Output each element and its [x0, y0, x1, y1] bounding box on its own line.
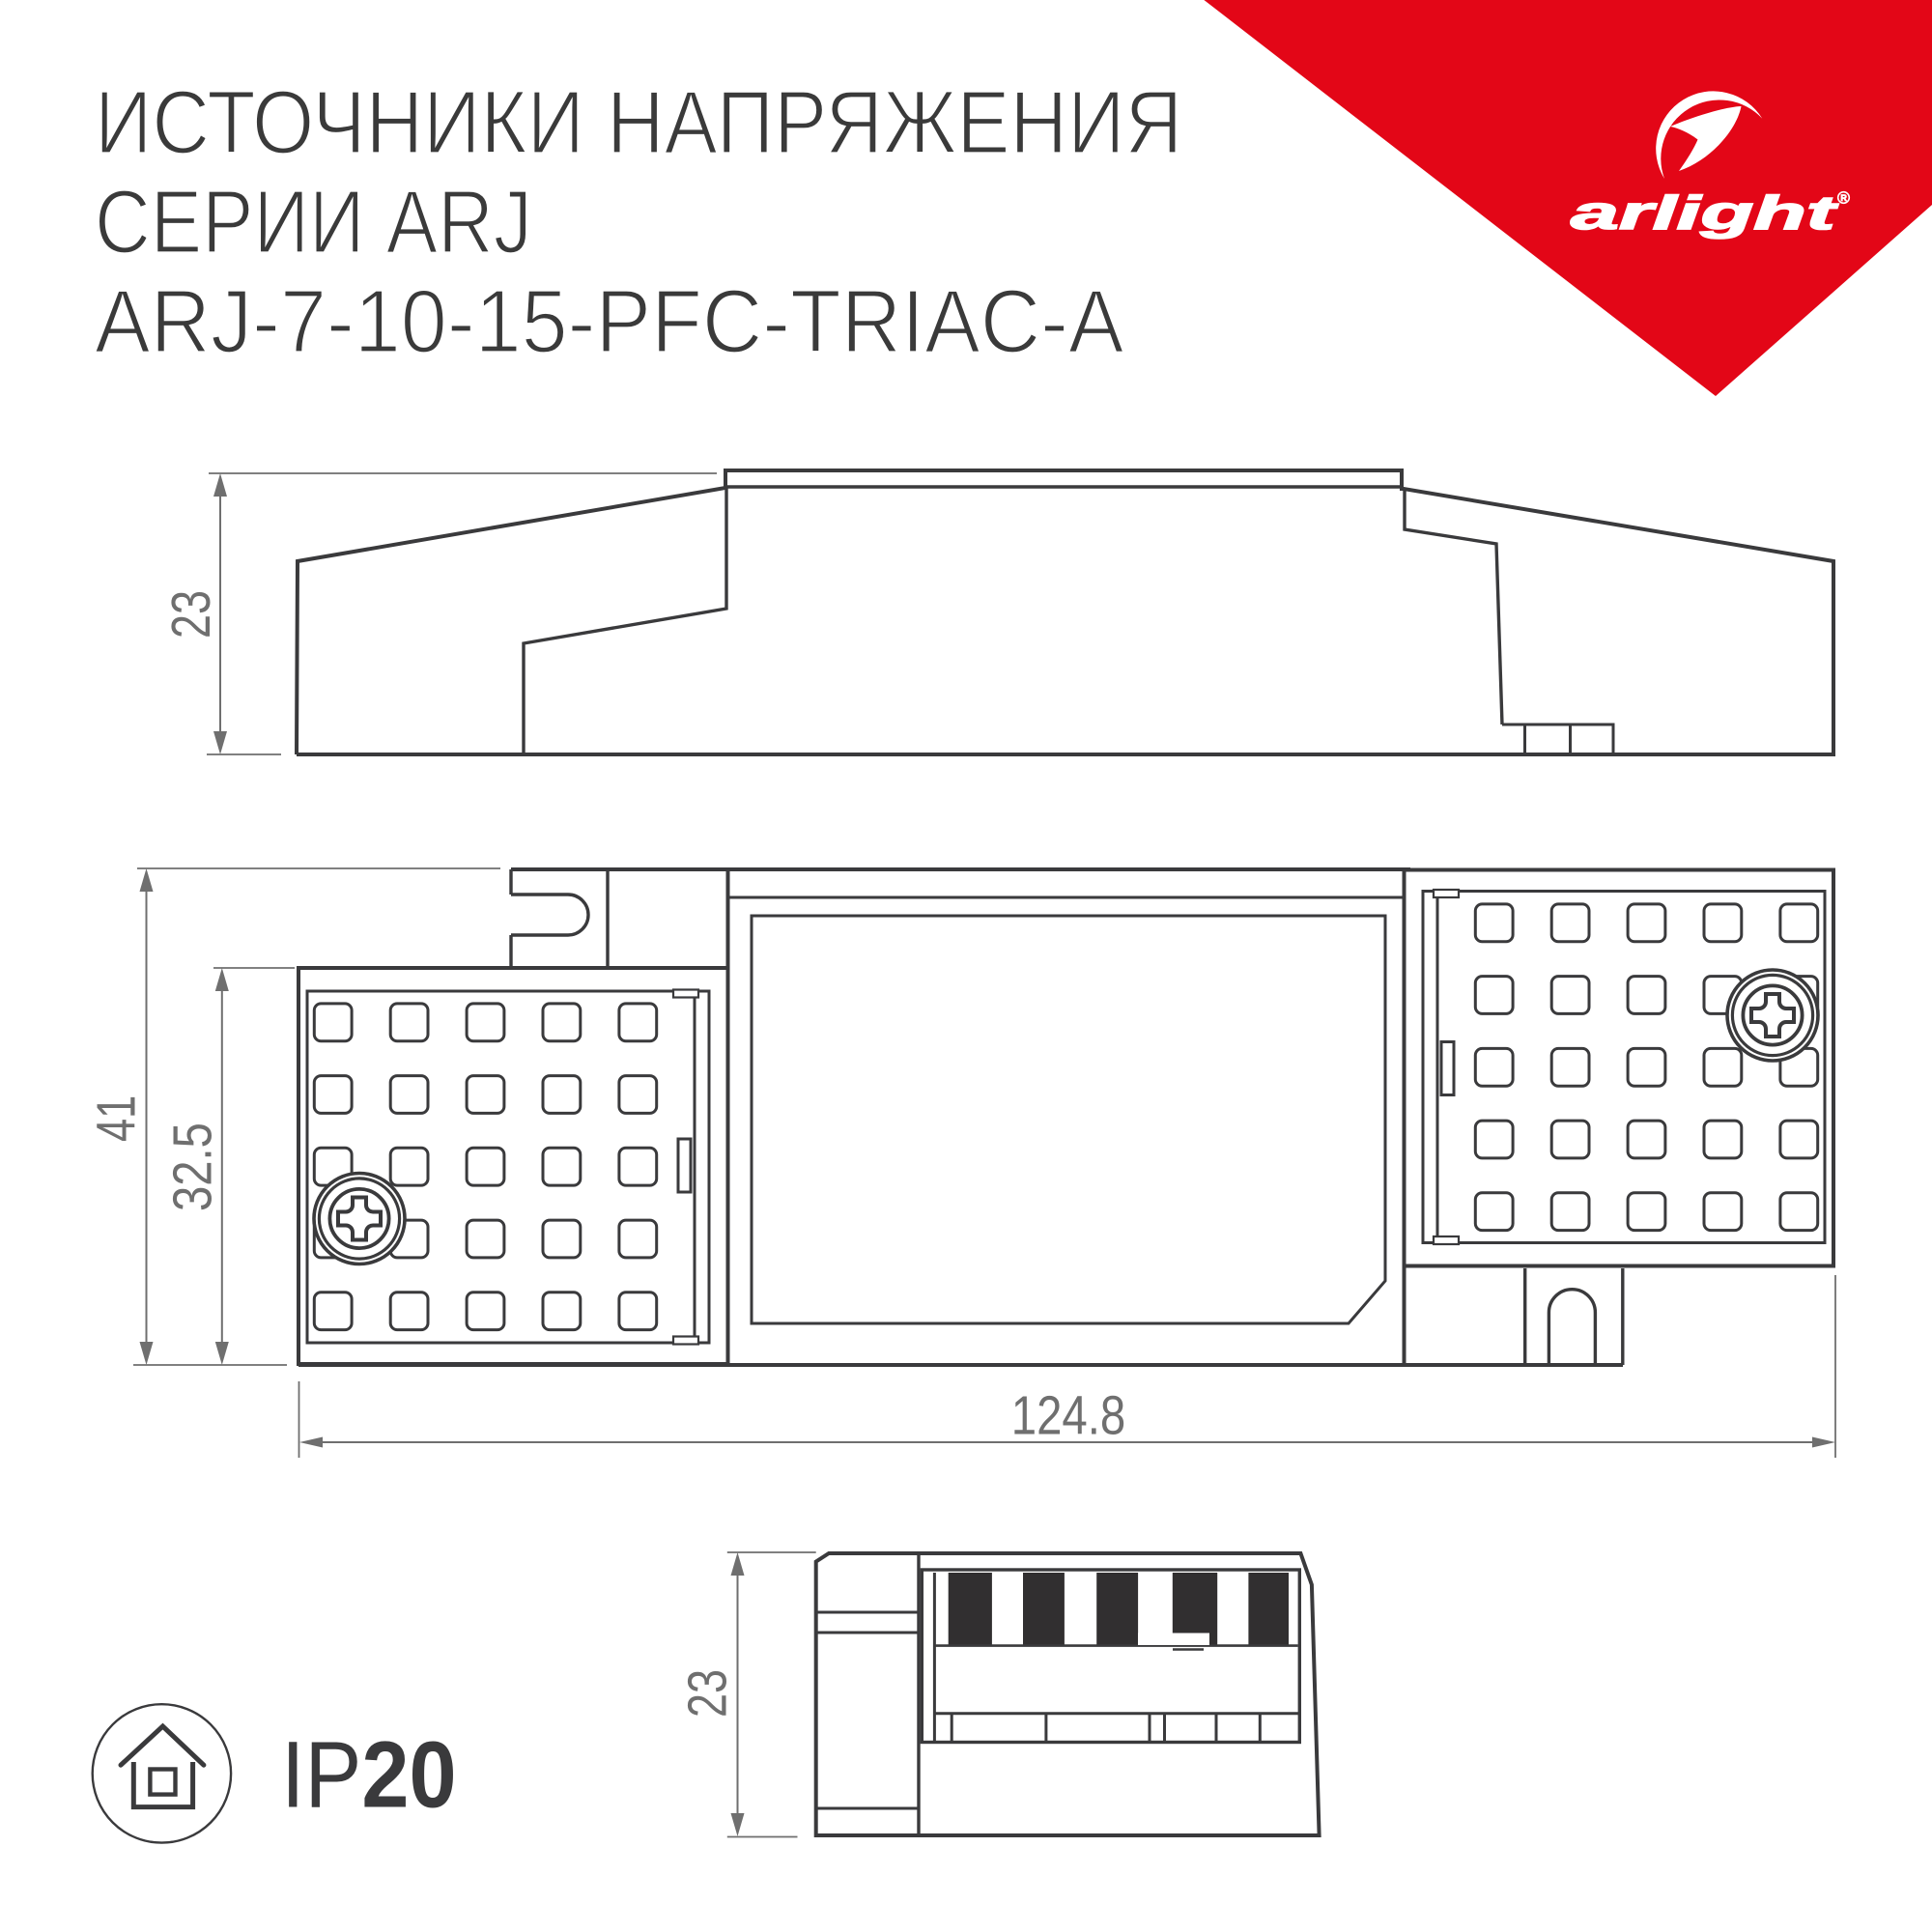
svg-text:23: 23 — [676, 1669, 737, 1718]
svg-text:СЕРИИ ARJ: СЕРИИ ARJ — [95, 173, 532, 272]
svg-text:23: 23 — [160, 590, 221, 639]
svg-text:R: R — [1840, 193, 1847, 203]
svg-text:ARJ-7-10-15-PFC-TRIAC-A: ARJ-7-10-15-PFC-TRIAC-A — [95, 271, 1124, 371]
svg-text:32.5: 32.5 — [163, 1122, 224, 1211]
svg-text:IP20: IP20 — [281, 1722, 457, 1828]
svg-text:arlight: arlight — [1571, 186, 1838, 240]
svg-text:41: 41 — [85, 1095, 147, 1142]
svg-text:ИСТОЧНИКИ НАПРЯЖЕНИЯ: ИСТОЧНИКИ НАПРЯЖЕНИЯ — [95, 72, 1182, 172]
svg-text:124.8: 124.8 — [1011, 1386, 1126, 1447]
